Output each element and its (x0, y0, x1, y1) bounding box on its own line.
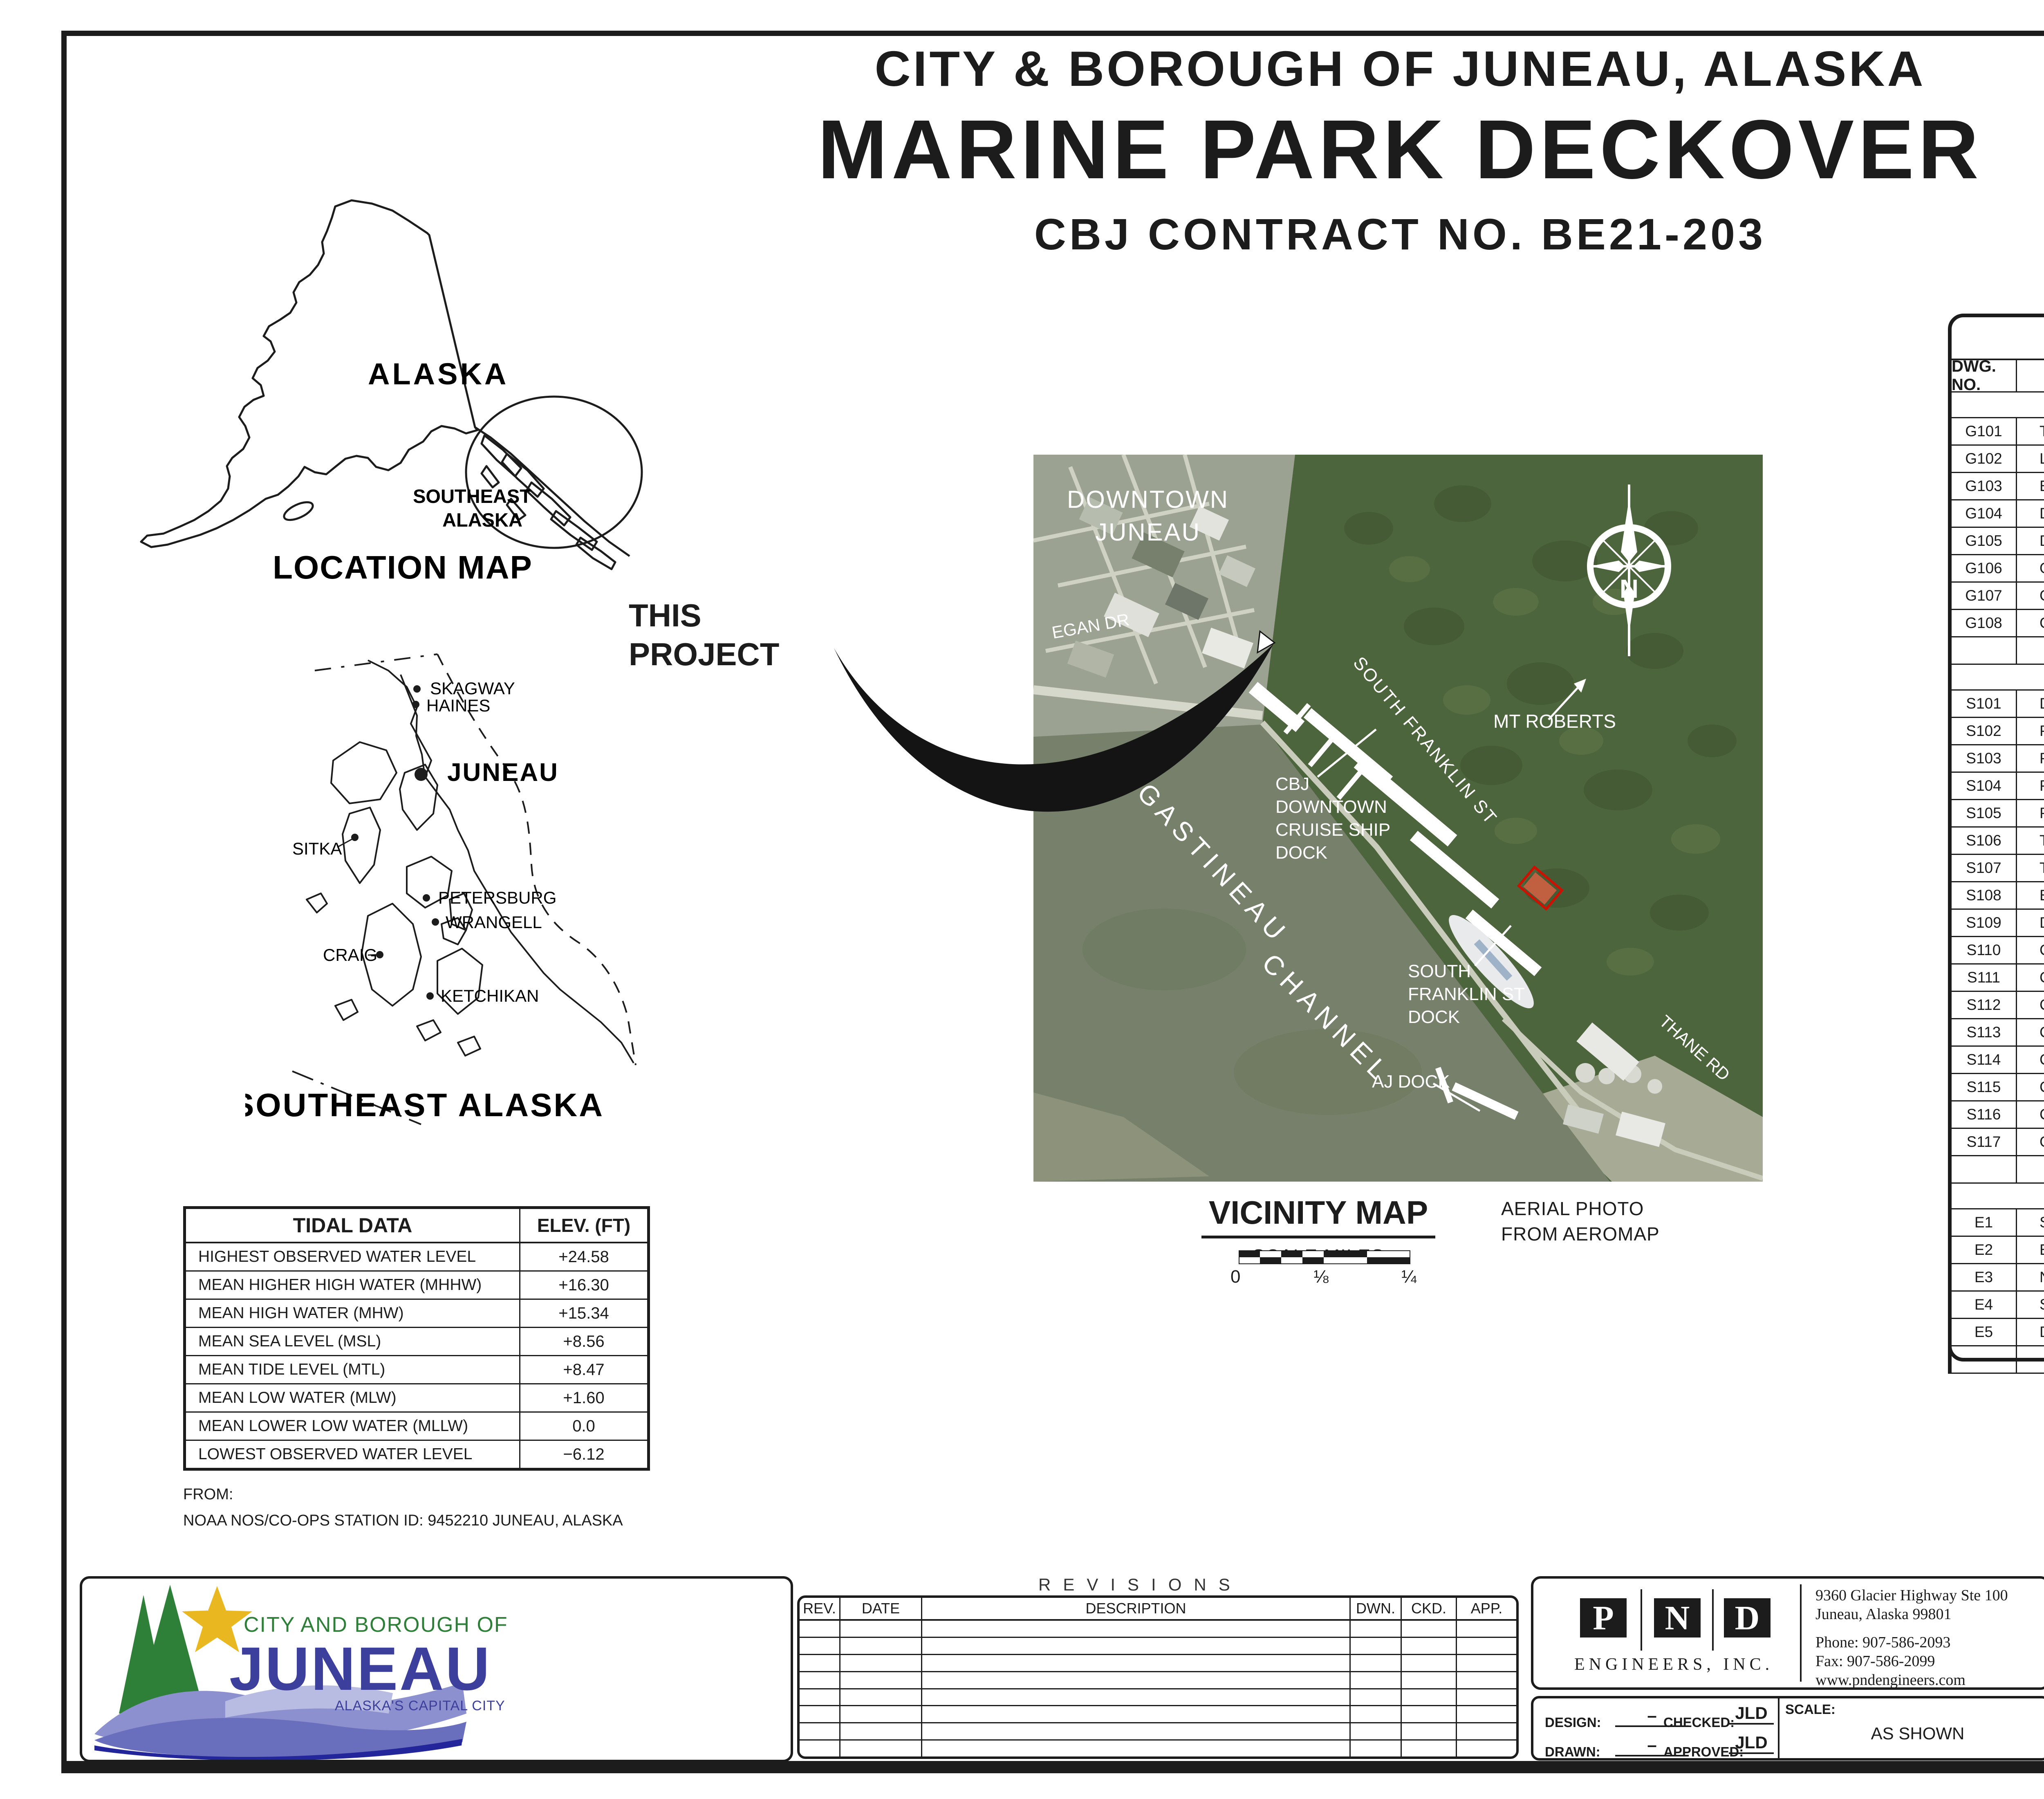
drawing-index-row: S111CONCRETE DECK PANEL DETAILS (1952, 965, 2044, 992)
city-dot-ketchikan (426, 992, 434, 1000)
dwg-no: S109 (1952, 910, 2017, 936)
scale-value: AS SHOWN (1795, 1724, 2040, 1743)
dwg-no: S102 (1952, 718, 2017, 744)
fields-box: DESIGN: – DRAWN: – CHECKED: JLD APPROVED… (1531, 1696, 2044, 1761)
header-line3: CBJ CONTRACT NO. BE21-203 (797, 209, 2003, 260)
dwg-title: TIMBER DOCK TRANSITION TO EXISTING DOCK (2017, 855, 2044, 881)
revisions-empty-row (800, 1689, 1516, 1707)
dwg-title: SINGLE LINE DIAGRAM – NORTH BERTH DISTRI… (2017, 1292, 2044, 1318)
tidal-title: TIDAL DATA (186, 1209, 520, 1242)
dwg-no: S110 (1952, 937, 2017, 963)
tidal-label: MEAN TIDE LEVEL (MTL) (186, 1356, 520, 1383)
pnd-letter-d: D (1724, 1598, 1771, 1637)
tidal-label: MEAN HIGHER HIGH WATER (MHHW) (186, 1272, 520, 1299)
dwg-title: DEMOLITION PLAN (2017, 500, 2044, 527)
dwg-title: CABLE STRAND RAILING DETAILS (2017, 1047, 2044, 1073)
pnd-fax: Fax: 907-586-2099 (1815, 1652, 2008, 1671)
tidal-label: MEAN HIGH WATER (MHW) (186, 1300, 520, 1327)
dwg-no: S112 (1952, 992, 2017, 1018)
location-map: ALASKA SOUTHEAST ALASKA LOCATION MAP (123, 172, 662, 589)
dwg-title: CABLE STRAND RAILING DETAILS (2017, 1101, 2044, 1128)
scale-tick-labels: 0 ⅛ ¼ (1230, 1267, 1416, 1287)
tidal-value: +16.30 (520, 1272, 647, 1299)
drawing-index-row: E1SITE PLAN – NORTH BERTH (1952, 1209, 2044, 1237)
swoosh-tip-marker (1257, 631, 1275, 653)
dwg-no: S113 (1952, 1019, 2017, 1045)
dwg-title: DOCK CONNECTION DETAILS (2017, 910, 2044, 936)
revisions-title: REVISIONS (1038, 1575, 1242, 1595)
downtown-label-2: JUNEAU (1095, 518, 1201, 546)
revisions-col-header: APP. (1457, 1598, 1516, 1619)
city-label-sitka: SITKA (292, 839, 342, 858)
aerial-credit-line2: FROM AEROMAP (1501, 1221, 1660, 1247)
city-label-petersburg: PETERSBURG (438, 888, 556, 907)
approved-value: JLD (1729, 1733, 1774, 1754)
this-project-callout: THIS PROJECT (629, 596, 779, 674)
small-island (458, 1036, 480, 1056)
dwg-no: E2 (1952, 1237, 2017, 1263)
tidal-row: MEAN LOWER LOW WATER (MLLW)0.0 (186, 1413, 647, 1441)
dwg-title: TIMBER DOCK SECTION AND DETAILS (2017, 828, 2044, 854)
drawing-index-row: G106OVERALL SITE PLAN WITH GRADING (1952, 555, 2044, 583)
drawing-index-section-row: STRUCTURAL (1952, 665, 2044, 691)
scale-cell-divider (1778, 1698, 1780, 1758)
dwg-title: EXISTING MOORING DOLPHIN MODIFICATIONS (2017, 882, 2044, 908)
revisions-empty-row (800, 1672, 1516, 1689)
revisions-col-header: REV. (800, 1598, 840, 1619)
island-chichagof (331, 742, 397, 803)
drawing-index-rows: GENERALG101TITLE SHEET, VICINITY MAP AND… (1952, 393, 2044, 1374)
title-sheet-page: CITY & BOROUGH OF JUNEAU, ALASKA MARINE … (0, 0, 2044, 1799)
revisions-empty-row (800, 1706, 1516, 1723)
drawing-index-title: DRAWING INDEX (1952, 327, 2044, 352)
title-col-header: TITLE (2017, 360, 2044, 391)
section-name: STRUCTURAL (1952, 665, 2044, 689)
juneau-logo: CITY AND BOROUGH OF JUNEAU ALASKA'S CAPI… (82, 1579, 791, 1760)
revisions-col-header: DATE (840, 1598, 922, 1619)
tidal-value: 0.0 (520, 1413, 647, 1440)
dwg-title: TITLE SHEET, VICINITY MAP AND DRAWING IN… (2017, 418, 2044, 444)
pnd-address-line2: Juneau, Alaska 99801 (1815, 1605, 2008, 1624)
dwg-no: G107 (1952, 583, 2017, 609)
dwg-no-col-header: DWG. NO. (1952, 360, 2017, 391)
location-map-title: LOCATION MAP (273, 549, 533, 585)
revisions-empty-rows (800, 1621, 1516, 1756)
dwg-title: CABLE STRAND RAILING DETAILS (2017, 1074, 2044, 1100)
tidal-row: MEAN HIGH WATER (MHW)+15.34 (186, 1300, 647, 1328)
small-island (482, 466, 499, 487)
alaska-label: ALASKA (368, 357, 509, 391)
vicinity-map-title: VICINITY MAP (1201, 1194, 1435, 1238)
southeast-alaska-map: SKAGWAY HAINES JUNEAU SITKA PETERSBURG W… (245, 638, 654, 1182)
tidal-col-header: ELEV. (FT) (520, 1209, 647, 1242)
pnd-logo-divider (1712, 1589, 1714, 1651)
drawing-index-row: E5DETAILS (1952, 1319, 2044, 1346)
tidal-row: MEAN HIGHER HIGH WATER (MHHW)+16.30 (186, 1272, 647, 1300)
dwg-title: GENERAL SECTIONS (2017, 583, 2044, 609)
city-label-craig: CRAIG (323, 945, 377, 965)
city-label-wrangell: WRANGELL (446, 913, 542, 932)
dwg-title: PILE CAP DETAILS (2017, 773, 2044, 799)
logo-line2: JUNEAU (229, 1634, 491, 1703)
pnd-website: www.pndengineers.com (1815, 1671, 2008, 1689)
tidal-rows: HIGHEST OBSERVED WATER LEVEL+24.58MEAN H… (186, 1243, 647, 1468)
dwg-title: DECK AND FRAMING PLAN (2017, 691, 2044, 717)
drawing-index-row: S112CONCRETE DECK PANEL DETAILS (1952, 992, 2044, 1019)
drawing-index-header: DWG. NO. TITLE (1952, 360, 2044, 393)
dwg-no: S105 (1952, 800, 2017, 826)
pnd-engineers-box: P N D ENGINEERS, INC. 9360 Glacier Highw… (1531, 1576, 2044, 1690)
city-dot-wrangell (432, 918, 439, 926)
dwg-title: SITE PLAN – NORTH BERTH (2017, 1209, 2044, 1236)
sf-dock-label-2: FRANKLIN ST (1408, 984, 1525, 1004)
this-project-line2: PROJECT (629, 635, 779, 674)
drawing-index-row: S101DECK AND FRAMING PLAN (1952, 691, 2044, 718)
drawing-index-row: S114CABLE STRAND RAILING DETAILS (1952, 1047, 2044, 1074)
tidal-value: −6.12 (520, 1441, 647, 1468)
dwg-no: S101 (1952, 691, 2017, 717)
logo-line3: ALASKA'S CAPITAL CITY (335, 1698, 505, 1714)
dwg-title: GRADING AND DRAINAGE DETAILS (2017, 1129, 2044, 1155)
dwg-no: S117 (1952, 1129, 2017, 1155)
dwg-title: LEGEND, ABBREVIATIONS AND GENERAL NOTES (2017, 446, 2044, 472)
scale-bar (1239, 1250, 1410, 1264)
header-line1: CITY & BOROUGH OF JUNEAU, ALASKA (797, 40, 2003, 97)
drawing-index-row: S105PILE CAP DETAILS (1952, 800, 2044, 828)
city-label-juneau: JUNEAU (447, 758, 559, 787)
dwg-no: E3 (1952, 1264, 2017, 1290)
dwg-no: G104 (1952, 500, 2017, 527)
tidal-value: +15.34 (520, 1300, 647, 1327)
pnd-phone: Phone: 907-586-2093 (1815, 1633, 2008, 1652)
compass-n-label: N (1620, 574, 1638, 603)
dwg-no: S106 (1952, 828, 2017, 854)
drawing-index-row: G104DEMOLITION PLAN (1952, 500, 2044, 528)
drawing-index-section-row: ELECTRICAL (1952, 1184, 2044, 1209)
drawing-index-row: G105DEMOLITION DETAILS (1952, 528, 2044, 555)
small-island (417, 1020, 441, 1041)
juneau-logo-box: CITY AND BOROUGH OF JUNEAU ALASKA'S CAPI… (80, 1576, 793, 1762)
city-dot-haines (412, 701, 419, 708)
aerial-credit-line1: AERIAL PHOTO (1501, 1196, 1660, 1221)
drawing-index-row: G103EXISTING CONDITIONS AND SURVEY CONTR… (1952, 473, 2044, 500)
city-dot-juneau (415, 768, 428, 781)
small-island (307, 893, 327, 913)
top-border-dashed (315, 654, 437, 671)
dwg-no: E5 (1952, 1319, 2017, 1345)
dwg-title: PILE DETAILS (2017, 745, 2044, 772)
drawn-label: DRAWN: (1545, 1744, 1600, 1760)
revisions-empty-row (800, 1621, 1516, 1638)
drawing-index-row: S117GRADING AND DRAINAGE DETAILS (1952, 1129, 2044, 1156)
drawing-index-spacer-row (1952, 1346, 2044, 1374)
design-label: DESIGN: (1545, 1715, 1601, 1730)
drawing-index-row: E4SINGLE LINE DIAGRAM – NORTH BERTH DIST… (1952, 1292, 2044, 1319)
checked-value: JLD (1729, 1703, 1774, 1725)
pnd-address-line1: 9360 Glacier Highway Ste 100 (1815, 1586, 2008, 1605)
small-island (335, 1000, 358, 1020)
drawing-index-row: S109DOCK CONNECTION DETAILS (1952, 910, 2044, 937)
drawing-index-row: S116CABLE STRAND RAILING DETAILS (1952, 1101, 2044, 1129)
island-baranof (343, 808, 380, 883)
dwg-title: PILE CAP DETAILS (2017, 800, 2044, 826)
pnd-address: 9360 Glacier Highway Ste 100 Juneau, Ala… (1815, 1586, 2008, 1690)
dwg-no: E1 (1952, 1209, 2017, 1236)
kodiak-island (282, 498, 315, 523)
dwg-no: G108 (1952, 610, 2017, 636)
southeast-label-2: ALASKA (442, 509, 522, 531)
pnd-letter-p: P (1580, 1598, 1627, 1637)
drawing-index-row: S115CABLE STRAND RAILING DETAILS (1952, 1074, 2044, 1101)
city-dot-petersburg (423, 894, 430, 902)
city-label-ketchikan: KETCHIKAN (441, 986, 539, 1005)
drawing-index-row: S107TIMBER DOCK TRANSITION TO EXISTING D… (1952, 855, 2044, 882)
scale-tick-quarter: ¼ (1401, 1267, 1416, 1287)
dwg-title: CONCRETE WALL DETAILS (2017, 937, 2044, 963)
se-map-title: SOUTHEAST ALASKA (245, 1087, 604, 1123)
drawing-index-section-row: GENERAL (1952, 393, 2044, 418)
city-dot-sitka (351, 834, 359, 841)
tidal-label: MEAN SEA LEVEL (MSL) (186, 1328, 520, 1355)
dwg-title: DEMOLITION DETAILS (2017, 528, 2044, 554)
tidal-row: MEAN LOW WATER (MLW)+1.60 (186, 1384, 647, 1413)
revisions-col-header: CKD. (1402, 1598, 1457, 1619)
dwg-no: S115 (1952, 1074, 2017, 1100)
drawing-index-row: G101TITLE SHEET, VICINITY MAP AND DRAWIN… (1952, 418, 2044, 446)
swoosh-arrow-icon (834, 644, 1273, 812)
revisions-header-row: REV.DATEDESCRIPTIONDWN.CKD.APP. (800, 1598, 1516, 1621)
dwg-no: G101 (1952, 418, 2017, 444)
dwg-title: EXISTING SITE PLAN ELECTRICAL (2017, 1237, 2044, 1263)
dwg-title: NEW SITE PLAN ELECTRICAL (2017, 1264, 2044, 1290)
dwg-no: S116 (1952, 1101, 2017, 1128)
dwg-title: EXISTING CONDITIONS AND SURVEY CONTROL (2017, 473, 2044, 499)
tidal-row: LOWEST OBSERVED WATER LEVEL−6.12 (186, 1441, 647, 1468)
revisions-empty-row (800, 1638, 1516, 1655)
dwg-no: S114 (1952, 1047, 2017, 1073)
drawing-index-spacer-row (1952, 1156, 2044, 1184)
scale-tick-eighth: ⅛ (1313, 1267, 1329, 1287)
lynn-canal (401, 675, 424, 773)
city-dot-skagway (413, 685, 421, 693)
section-name: ELECTRICAL (1952, 1184, 2044, 1208)
drawing-index-row: G107GENERAL SECTIONS (1952, 583, 2044, 610)
header-line2: MARINE PARK DECKOVER (797, 101, 2003, 198)
checked-label: CHECKED: (1663, 1715, 1735, 1730)
this-project-line1: THIS (629, 596, 779, 635)
from-label: FROM: (183, 1487, 623, 1502)
sheet-header: CITY & BOROUGH OF JUNEAU, ALASKA MARINE … (797, 40, 2003, 260)
revisions-table: REV.DATEDESCRIPTIONDWN.CKD.APP. (797, 1595, 1519, 1759)
southeast-label-1: SOUTHEAST (413, 485, 531, 507)
city-label-skagway: SKAGWAY (430, 679, 515, 698)
aj-dock-label: AJ DOCK (1372, 1072, 1450, 1092)
drawing-index-row: S113CABLE STRAND RAILING ELEVATION (1952, 1019, 2044, 1047)
tidal-value: +8.56 (520, 1328, 647, 1355)
revisions-empty-row (800, 1655, 1516, 1672)
city-label-haines: HAINES (426, 696, 490, 715)
dwg-title: CONCRETE DECK PANEL DETAILS (2017, 992, 2044, 1018)
sf-dock-label-3: DOCK (1408, 1007, 1460, 1027)
revisions-col-header: DESCRIPTION (922, 1598, 1351, 1619)
dwg-no: S108 (1952, 882, 2017, 908)
logo-line1: CITY AND BOROUGH OF (244, 1613, 508, 1637)
drawing-index-table: DWG. NO. TITLE GENERALG101TITLE SHEET, V… (1948, 359, 2044, 1374)
tidal-value: +1.60 (520, 1384, 647, 1411)
tidal-row: MEAN SEA LEVEL (MSL)+8.56 (186, 1328, 647, 1356)
project-arrow (777, 593, 1308, 961)
dwg-title: CONCRETE DECK PANEL DETAILS (2017, 965, 2044, 991)
drawing-index-row: G108GENERAL SECTIONS (1952, 610, 2044, 637)
dwg-no: G103 (1952, 473, 2017, 499)
drawing-index-row: E3NEW SITE PLAN ELECTRICAL (1952, 1264, 2044, 1292)
downtown-label-1: DOWNTOWN (1067, 486, 1229, 513)
drawing-index-row: S108EXISTING MOORING DOLPHIN MODIFICATIO… (1952, 882, 2044, 910)
drawing-index-row: S102PILE PLAN AND SCHEDULE (1952, 718, 2044, 745)
drawing-index-row: G102LEGEND, ABBREVIATIONS AND GENERAL NO… (1952, 446, 2044, 473)
tidal-row: HIGHEST OBSERVED WATER LEVEL+24.58 (186, 1243, 647, 1272)
dwg-no: S107 (1952, 855, 2017, 881)
pnd-company-name: ENGINEERS, INC. (1574, 1655, 1773, 1674)
tidal-source-note: FROM: NOAA NOS/CO-OPS STATION ID: 945221… (183, 1487, 623, 1528)
revisions-col-header: DWN. (1351, 1598, 1402, 1619)
dwg-no: S104 (1952, 773, 2017, 799)
drawing-index: DRAWING INDEX DWG. NO. TITLE GENERALG101… (1948, 314, 2044, 1362)
pnd-logo-divider (1641, 1589, 1642, 1651)
dwg-title: GENERAL SECTIONS (2017, 610, 2044, 636)
tidal-row: MEAN TIDE LEVEL (MTL)+8.47 (186, 1356, 647, 1384)
aerial-credit: AERIAL PHOTO FROM AEROMAP (1501, 1196, 1660, 1247)
dwg-no: G106 (1952, 555, 2017, 581)
revisions-empty-row (800, 1741, 1516, 1756)
scale-label: SCALE: (1785, 1702, 1836, 1717)
scale-tick-0: 0 (1230, 1267, 1240, 1287)
drawing-index-row: E2EXISTING SITE PLAN ELECTRICAL (1952, 1237, 2044, 1264)
tidal-data-table: TIDAL DATA ELEV. (FT) HIGHEST OBSERVED W… (183, 1206, 650, 1471)
tidal-header-row: TIDAL DATA ELEV. (FT) (186, 1209, 647, 1243)
tidal-label: HIGHEST OBSERVED WATER LEVEL (186, 1243, 520, 1270)
drawing-index-spacer-row (1952, 637, 2044, 665)
tidal-label: MEAN LOW WATER (MLW) (186, 1384, 520, 1411)
dwg-title: DETAILS (2017, 1319, 2044, 1345)
sf-dock-label-1: SOUTH (1408, 961, 1471, 981)
drawing-index-row: S106TIMBER DOCK SECTION AND DETAILS (1952, 828, 2044, 855)
dwg-title: CABLE STRAND RAILING ELEVATION (2017, 1019, 2044, 1045)
panhandle-island (482, 435, 521, 476)
revisions-empty-row (800, 1723, 1516, 1741)
tidal-value: +8.47 (520, 1356, 647, 1383)
dwg-no: G102 (1952, 446, 2017, 472)
dwg-title: OVERALL SITE PLAN WITH GRADING (2017, 555, 2044, 581)
dwg-no: G105 (1952, 528, 2017, 554)
drawing-index-row: S103PILE DETAILS (1952, 745, 2044, 773)
dwg-no: E4 (1952, 1292, 2017, 1318)
dwg-no: S103 (1952, 745, 2017, 772)
tidal-value: +24.58 (520, 1243, 647, 1270)
pnd-letter-n: N (1654, 1598, 1701, 1637)
tidal-label: LOWEST OBSERVED WATER LEVEL (186, 1441, 520, 1468)
noaa-station-note: NOAA NOS/CO-OPS STATION ID: 9452210 JUNE… (183, 1513, 623, 1528)
dwg-title: PILE PLAN AND SCHEDULE (2017, 718, 2044, 744)
drawing-index-row: S104PILE CAP DETAILS (1952, 773, 2044, 800)
dwg-no: S111 (1952, 965, 2017, 991)
tidal-label: MEAN LOWER LOW WATER (MLLW) (186, 1413, 520, 1440)
drawing-index-row: S110CONCRETE WALL DETAILS (1952, 937, 2044, 965)
pnd-address-divider (1800, 1584, 1802, 1682)
section-name: GENERAL (1952, 393, 2044, 417)
